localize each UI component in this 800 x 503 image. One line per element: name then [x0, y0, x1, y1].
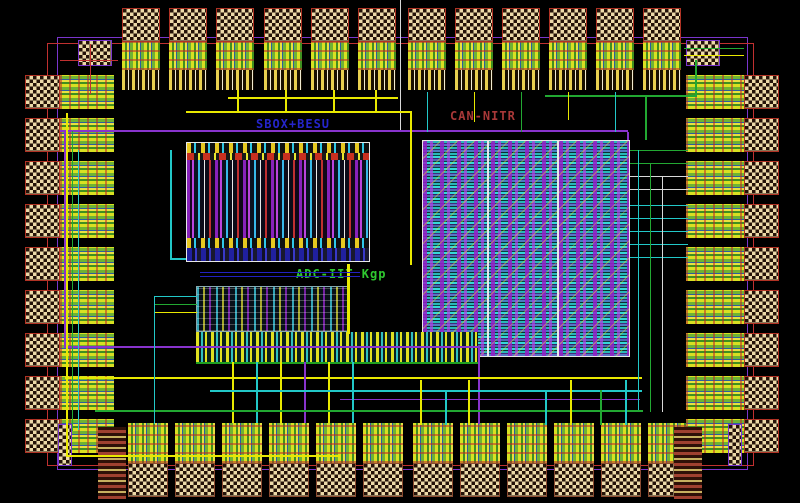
corner-cell-bottom-left	[58, 424, 72, 466]
sbox-io-row-top	[187, 143, 369, 153]
io-cells	[601, 423, 641, 463]
io-stripes	[122, 70, 160, 90]
bond-opening	[601, 463, 641, 497]
wire-c	[625, 380, 627, 425]
bond-pad-bottom	[128, 423, 168, 497]
bond-pad-top	[122, 8, 160, 90]
sbox-io-row-bottom	[187, 238, 369, 248]
bond-opening	[25, 161, 60, 195]
bond-opening	[25, 419, 60, 453]
wire-c	[154, 296, 155, 424]
io-cells	[686, 204, 744, 238]
wire-g	[650, 163, 651, 412]
label-can: CAN-NITR	[450, 109, 516, 123]
bond-opening	[269, 463, 309, 497]
io-stripes	[408, 70, 446, 90]
bond-pad-bottom	[269, 423, 309, 497]
bond-opening	[25, 290, 60, 324]
bond-opening	[744, 290, 779, 324]
wire-y	[285, 90, 287, 111]
bond-pad-bottom	[554, 423, 594, 497]
wire-w	[662, 176, 663, 412]
io-stripes	[455, 70, 493, 90]
io-cells	[643, 42, 681, 70]
wire-p	[627, 132, 629, 140]
bond-opening	[596, 8, 634, 42]
block-sbox-besu	[186, 142, 370, 262]
wire-y	[375, 90, 377, 111]
bond-pad-bottom	[507, 423, 547, 497]
bond-pad-bottom	[460, 423, 500, 497]
bond-pad-top	[216, 8, 254, 90]
bond-pad-top	[358, 8, 396, 90]
bond-opening	[744, 161, 779, 195]
wire-c	[615, 92, 616, 132]
io-cells	[60, 161, 114, 195]
bond-opening	[25, 75, 60, 109]
bond-pad-bottom	[413, 423, 453, 497]
io-cells	[128, 423, 168, 463]
io-cells	[686, 161, 744, 195]
io-cells	[311, 42, 349, 70]
wire-y	[570, 380, 572, 425]
corner-cell-top-right	[686, 40, 720, 66]
bond-pad-bottom	[601, 423, 641, 497]
wire-y	[410, 113, 412, 265]
bond-opening	[455, 8, 493, 42]
wire-c	[352, 362, 354, 423]
wire-c	[210, 390, 642, 392]
io-cells	[60, 204, 114, 238]
bond-opening	[744, 118, 779, 152]
wire-c	[170, 258, 186, 260]
wire-y	[232, 362, 234, 423]
bond-opening	[25, 204, 60, 238]
bond-opening	[502, 8, 540, 42]
io-cells	[686, 247, 744, 281]
bond-opening	[25, 376, 60, 410]
bond-pad-top	[311, 8, 349, 90]
corner-cell-bottom-right	[728, 424, 742, 466]
bond-pad-top	[408, 8, 446, 90]
bond-opening	[460, 463, 500, 497]
bond-pad-left	[25, 161, 114, 195]
bond-opening	[363, 463, 403, 497]
bond-opening	[316, 463, 356, 497]
can-column-separator	[487, 141, 489, 356]
corner-cell-top-left	[78, 40, 112, 66]
wire-y	[155, 312, 197, 313]
corner-filler-bottom-right	[674, 427, 702, 499]
io-cells	[60, 75, 114, 109]
wire-c	[638, 150, 639, 412]
io-cells	[408, 42, 446, 70]
label-sbox: SBOX+BESU	[256, 117, 330, 131]
wire-y	[66, 455, 340, 457]
bond-opening	[643, 8, 681, 42]
block-adc-analog-core	[196, 286, 348, 332]
bond-opening	[264, 8, 302, 42]
io-cells	[363, 423, 403, 463]
block-can-nitr	[422, 140, 630, 357]
bond-pad-top	[643, 8, 681, 90]
bond-opening	[311, 8, 349, 42]
bond-pad-right	[686, 75, 779, 109]
wire-g	[695, 60, 697, 97]
bond-pad-top	[169, 8, 207, 90]
wire-g	[72, 131, 73, 431]
bond-opening	[216, 8, 254, 42]
wire-r	[90, 44, 91, 94]
sbox-red-row	[187, 153, 369, 160]
io-stripes	[643, 70, 681, 90]
bond-opening	[175, 463, 215, 497]
wire-y	[474, 92, 475, 122]
bond-pad-left	[25, 118, 114, 152]
io-cells	[554, 423, 594, 463]
io-cells	[686, 376, 744, 410]
wire-c	[155, 296, 197, 297]
wire-c	[545, 390, 547, 425]
io-cells	[316, 423, 356, 463]
io-cells	[596, 42, 634, 70]
io-cells	[686, 290, 744, 324]
wire-y	[280, 362, 282, 423]
bond-pad-bottom	[363, 423, 403, 497]
io-stripes	[358, 70, 396, 90]
wire-y	[328, 362, 330, 423]
io-cells	[502, 42, 540, 70]
bond-pad-right	[686, 118, 779, 152]
wire-y	[468, 380, 470, 425]
block-adc-cell-row	[196, 332, 478, 364]
bond-pad-top	[264, 8, 302, 90]
bond-opening	[25, 247, 60, 281]
bond-opening	[744, 204, 779, 238]
io-cells	[60, 290, 114, 324]
wire-p	[304, 362, 306, 423]
wire-c	[170, 150, 172, 260]
bond-pad-left	[25, 290, 114, 324]
bond-pad-right	[686, 161, 779, 195]
bond-opening	[413, 463, 453, 497]
io-stripes	[169, 70, 207, 90]
bond-pad-right	[686, 376, 779, 410]
io-stripes	[502, 70, 540, 90]
io-cells	[60, 247, 114, 281]
bond-pad-bottom	[316, 423, 356, 497]
bond-opening	[169, 8, 207, 42]
wire-r	[60, 60, 118, 61]
wire-y	[228, 97, 398, 99]
io-cells	[60, 333, 114, 367]
wire-g	[645, 97, 647, 140]
bond-opening	[128, 463, 168, 497]
io-stripes	[264, 70, 302, 90]
chip-layout-canvas[interactable]: SBOX+BESU CAN-NITR ADC-IIT Kgp	[0, 0, 800, 503]
wire-y	[186, 111, 412, 113]
bond-opening	[222, 463, 262, 497]
io-cells	[460, 423, 500, 463]
io-cells	[222, 423, 262, 463]
bond-pad-left	[25, 204, 114, 238]
bond-pad-left	[25, 333, 114, 367]
wire-c	[256, 362, 258, 423]
bond-pad-right	[686, 333, 779, 367]
bond-opening	[744, 75, 779, 109]
bond-pad-left	[25, 247, 114, 281]
wire-p	[60, 130, 628, 132]
io-cells	[686, 118, 744, 152]
bond-opening	[408, 8, 446, 42]
wire-b	[200, 272, 360, 273]
io-cells	[686, 333, 744, 367]
label-adc: ADC-IIT Kgp	[296, 267, 386, 281]
sbox-cell-columns	[187, 160, 369, 238]
io-cells	[60, 376, 114, 410]
bond-opening	[744, 247, 779, 281]
io-cells	[269, 423, 309, 463]
can-column-separator	[557, 141, 559, 356]
wire-p	[64, 346, 480, 348]
io-cells	[455, 42, 493, 70]
wire-y	[347, 264, 350, 334]
bond-pad-top	[596, 8, 634, 90]
bond-pad-bottom	[175, 423, 215, 497]
bond-opening	[744, 376, 779, 410]
wire-p	[340, 399, 640, 400]
wire-y	[333, 90, 335, 111]
bond-pad-right	[686, 247, 779, 281]
bond-pad-bottom	[222, 423, 262, 497]
bond-pad-top	[502, 8, 540, 90]
io-cells	[122, 42, 160, 70]
corner-filler-bottom-left	[98, 427, 126, 499]
io-cells	[175, 423, 215, 463]
bond-opening	[25, 333, 60, 367]
bond-pad-right	[686, 290, 779, 324]
bond-opening	[744, 333, 779, 367]
bond-opening	[25, 118, 60, 152]
io-stripes	[216, 70, 254, 90]
bond-pad-top	[455, 8, 493, 90]
io-cells	[264, 42, 302, 70]
bond-pad-left	[25, 75, 114, 109]
bond-opening	[554, 463, 594, 497]
bond-pad-right	[686, 204, 779, 238]
wire-g	[600, 390, 602, 425]
bond-pad-top	[549, 8, 587, 90]
sbox-blue-row	[187, 248, 369, 261]
io-cells	[413, 423, 453, 463]
wire-g	[155, 304, 197, 305]
bond-opening	[549, 8, 587, 42]
bond-pad-left	[25, 376, 114, 410]
wire-b	[200, 276, 360, 277]
io-cells	[507, 423, 547, 463]
wire-g	[684, 48, 744, 49]
io-cells	[549, 42, 587, 70]
bond-opening	[122, 8, 160, 42]
wire-y	[684, 55, 744, 56]
wire-g	[521, 92, 522, 132]
io-cells	[216, 42, 254, 70]
wire-y	[237, 90, 239, 111]
wire-y	[568, 92, 569, 120]
bond-opening	[507, 463, 547, 497]
io-stripes	[311, 70, 349, 90]
wire-c	[78, 150, 79, 430]
io-stripes	[596, 70, 634, 90]
io-cells	[169, 42, 207, 70]
wire-c	[427, 92, 428, 132]
bond-opening	[358, 8, 396, 42]
io-stripes	[549, 70, 587, 90]
bond-opening	[744, 419, 779, 453]
wire-c	[445, 390, 447, 425]
io-cells	[358, 42, 396, 70]
wire-y	[66, 113, 68, 455]
wire-p	[478, 348, 480, 424]
wire-g	[95, 410, 643, 412]
io-cells	[60, 118, 114, 152]
wire-y	[420, 380, 422, 425]
